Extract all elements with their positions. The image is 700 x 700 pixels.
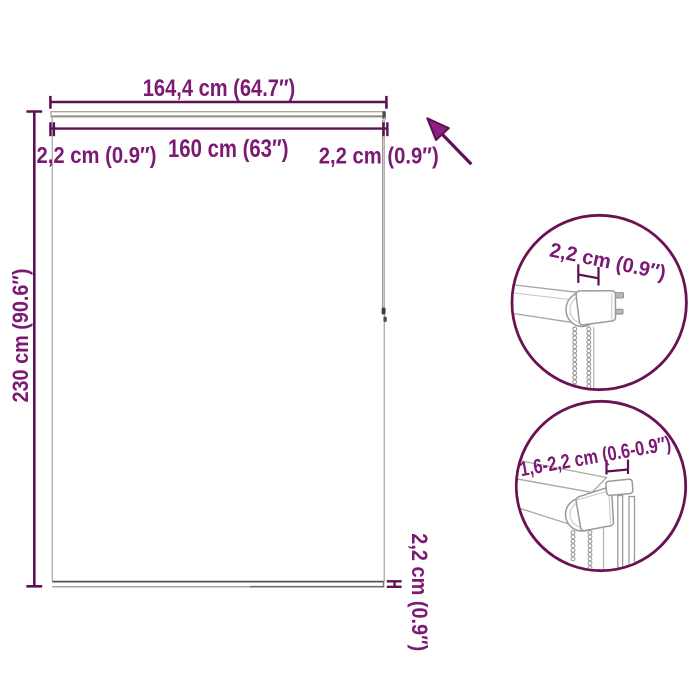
svg-text:160 cm (63″): 160 cm (63″) bbox=[168, 135, 289, 163]
svg-text:2,2 cm (0.9″): 2,2 cm (0.9″) bbox=[37, 142, 157, 168]
svg-text:164,4 cm (64.7″): 164,4 cm (64.7″) bbox=[143, 75, 296, 102]
svg-text:230 cm (90.6″): 230 cm (90.6″) bbox=[8, 269, 33, 403]
svg-text:2,2 cm (0.9″): 2,2 cm (0.9″) bbox=[319, 142, 439, 168]
svg-text:2,2 cm (0.9″): 2,2 cm (0.9″) bbox=[407, 533, 432, 651]
